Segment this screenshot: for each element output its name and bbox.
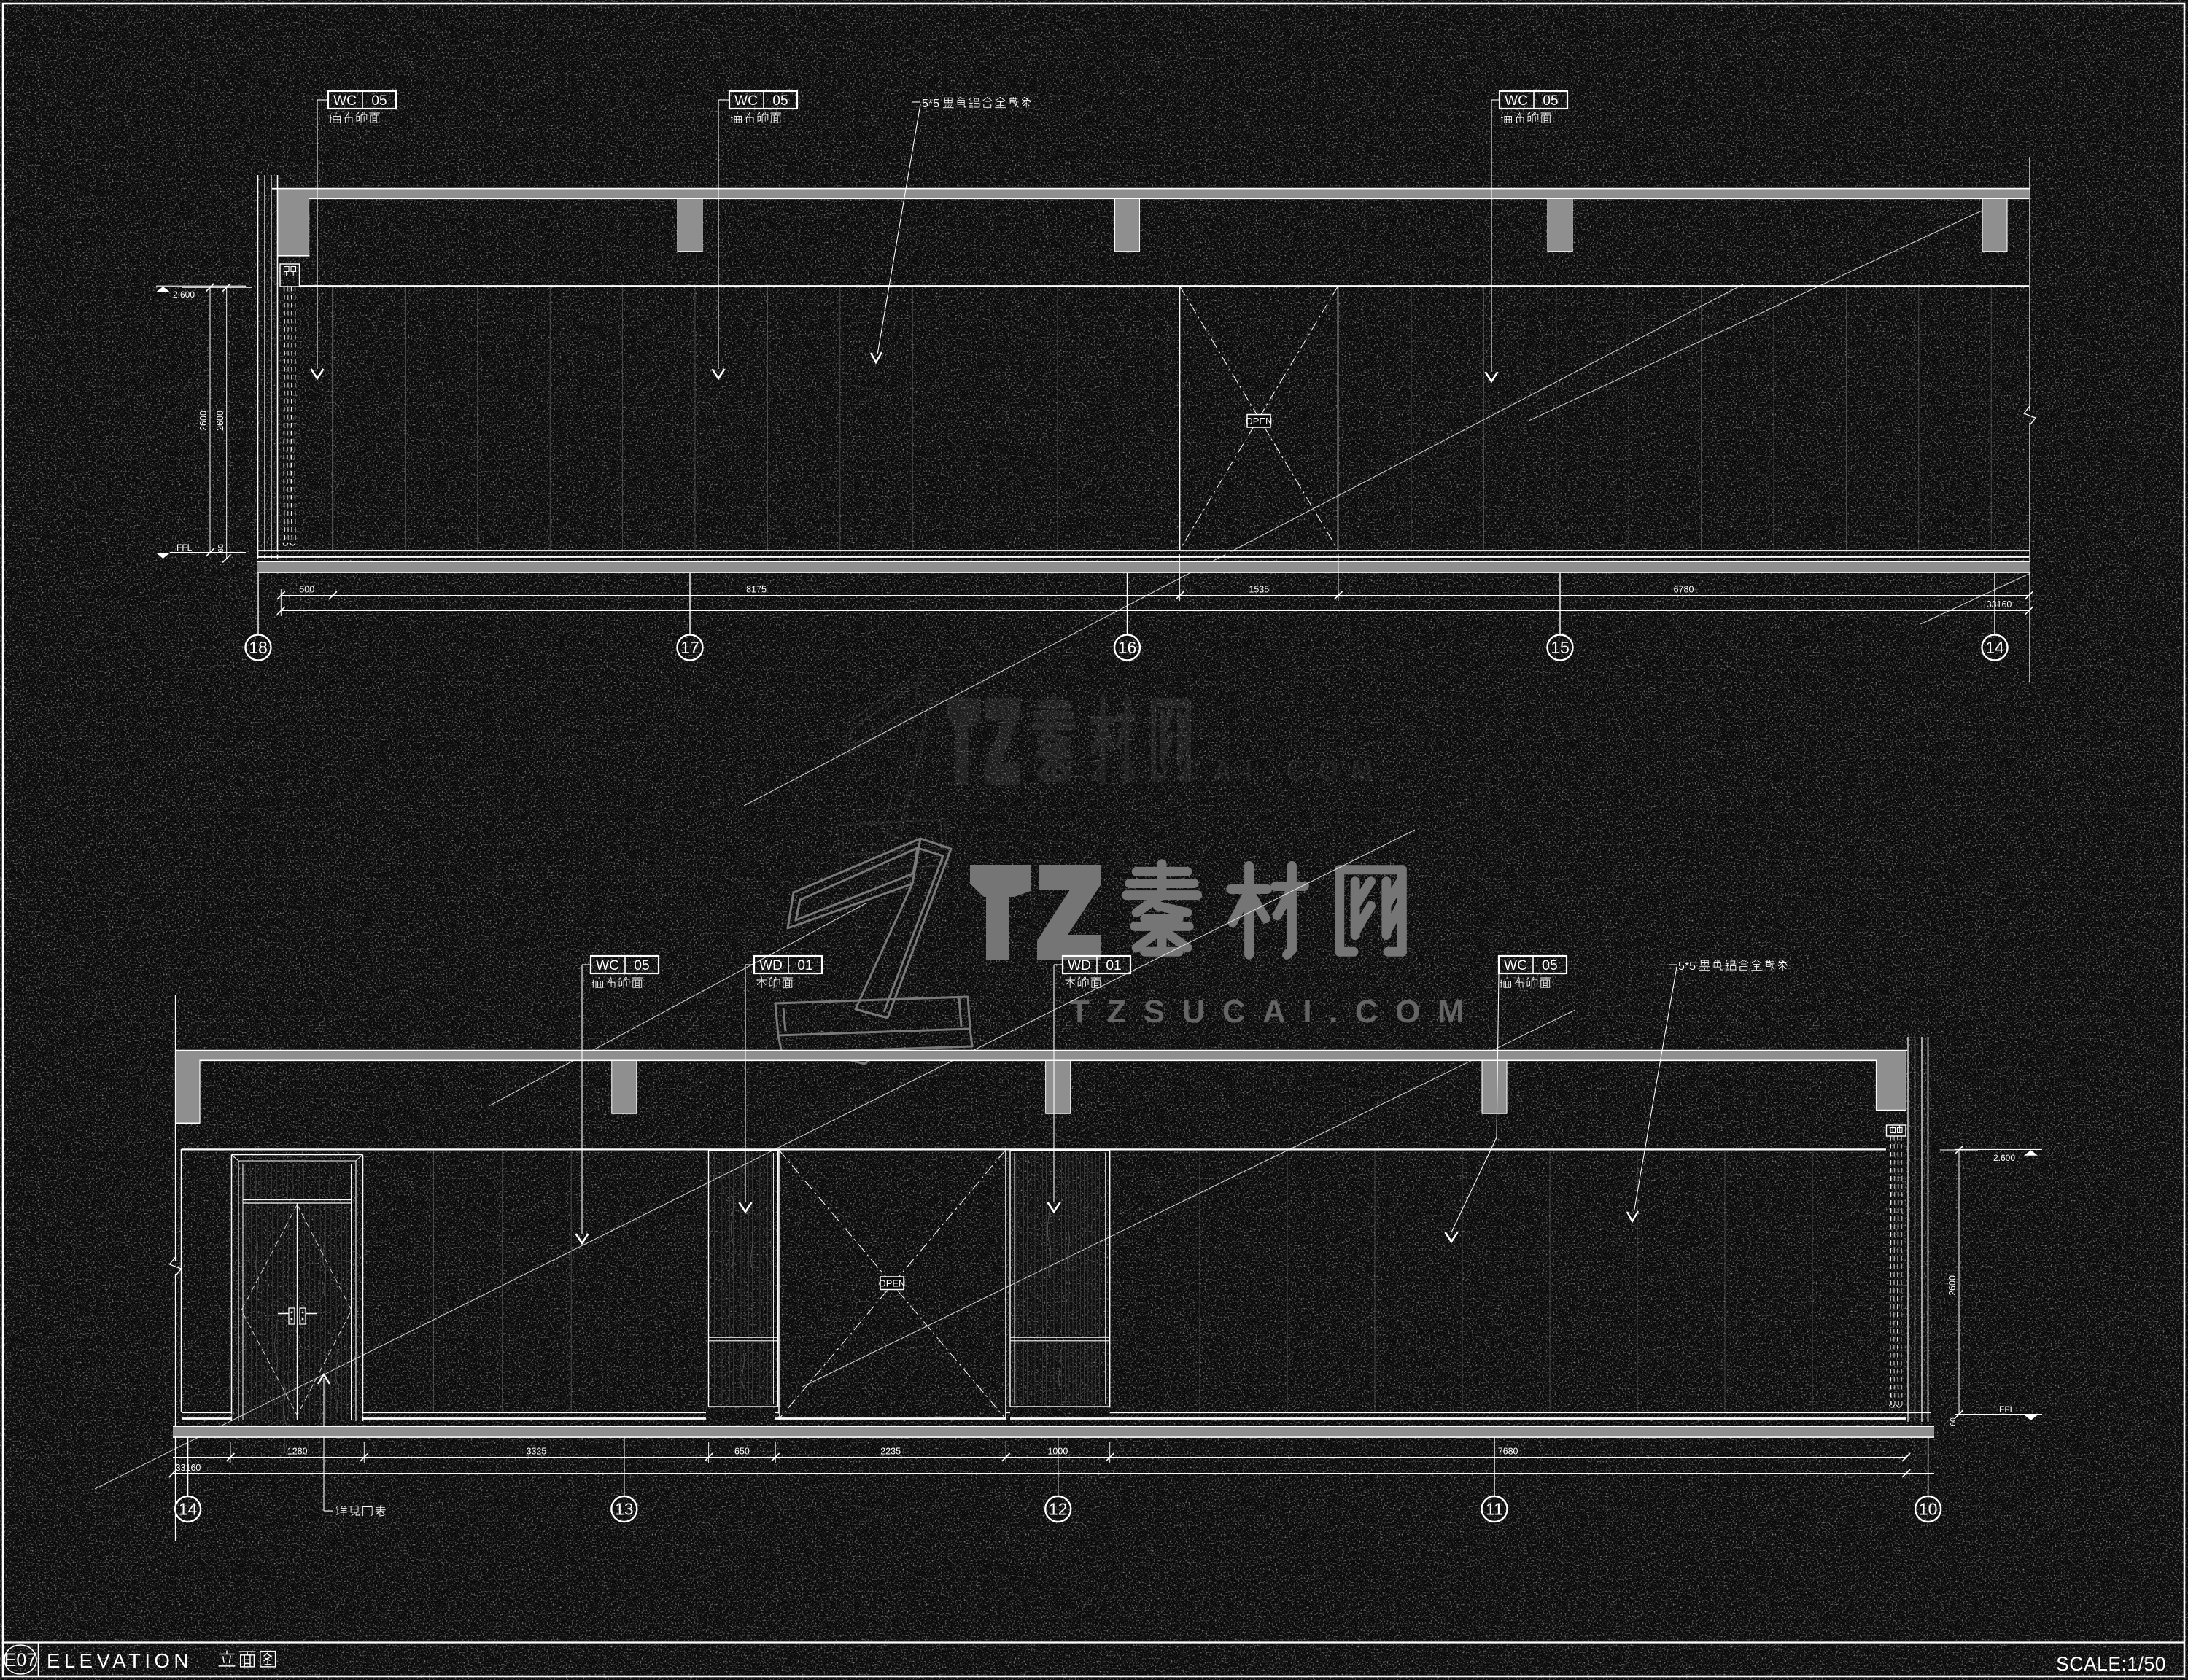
svg-text:18: 18 — [249, 638, 268, 657]
svg-text:500: 500 — [299, 585, 314, 595]
svg-text:TZSUCAI.COM: TZSUCAI.COM — [1070, 994, 1481, 1030]
svg-text:2235: 2235 — [880, 1447, 901, 1457]
svg-text:01: 01 — [1106, 958, 1121, 973]
svg-text:FFL: FFL — [1999, 1404, 2015, 1415]
svg-text:6780: 6780 — [1674, 585, 1694, 595]
svg-text:OPEN: OPEN — [879, 1278, 906, 1289]
svg-text:2.600: 2.600 — [173, 289, 195, 300]
svg-text:WC: WC — [596, 958, 619, 973]
svg-text:WD: WD — [759, 958, 783, 973]
svg-text:5*5: 5*5 — [922, 98, 939, 110]
svg-text:ELEVATION: ELEVATION — [47, 1649, 193, 1672]
svg-text:1280: 1280 — [287, 1447, 308, 1457]
svg-text:17: 17 — [680, 638, 699, 657]
svg-text:7680: 7680 — [1498, 1447, 1518, 1457]
svg-text:05: 05 — [1542, 958, 1557, 973]
svg-text:WC: WC — [1504, 958, 1527, 973]
svg-text:2600: 2600 — [198, 411, 209, 431]
svg-text:WC: WC — [1505, 93, 1528, 109]
svg-text:WD: WD — [1068, 958, 1091, 973]
svg-text:WC: WC — [333, 93, 357, 109]
svg-text:05: 05 — [1543, 93, 1558, 109]
svg-text:8175: 8175 — [746, 585, 767, 595]
svg-text:OPEN: OPEN — [1246, 416, 1273, 427]
svg-text:FFL: FFL — [176, 542, 193, 553]
svg-text:2600: 2600 — [1947, 1275, 1958, 1296]
svg-text:E07: E07 — [4, 1650, 36, 1671]
svg-text:2.600: 2.600 — [1993, 1153, 2015, 1163]
svg-text:3325: 3325 — [526, 1447, 546, 1457]
svg-text:60: 60 — [217, 544, 225, 553]
svg-text:05: 05 — [772, 93, 788, 109]
svg-text:14: 14 — [1985, 638, 2004, 657]
svg-text:1535: 1535 — [1249, 585, 1269, 595]
svg-text:01: 01 — [797, 958, 812, 973]
svg-text:SCALE:1/50: SCALE:1/50 — [2056, 1653, 2166, 1675]
svg-text:12: 12 — [1049, 1500, 1068, 1519]
svg-text:05: 05 — [634, 958, 649, 973]
svg-text:WC: WC — [734, 93, 758, 109]
svg-text:10: 10 — [1919, 1500, 1938, 1519]
svg-text:11: 11 — [1486, 1500, 1503, 1519]
svg-text:13: 13 — [615, 1500, 634, 1519]
svg-text:16: 16 — [1118, 638, 1137, 657]
svg-text:05: 05 — [371, 93, 387, 109]
svg-text:15: 15 — [1551, 638, 1570, 657]
svg-text:33160: 33160 — [1987, 599, 2012, 610]
svg-text:60: 60 — [1949, 1417, 1958, 1426]
svg-text:650: 650 — [734, 1447, 750, 1457]
svg-text:5*5: 5*5 — [1678, 960, 1696, 973]
svg-text:2600: 2600 — [215, 411, 225, 431]
svg-text:14: 14 — [179, 1500, 198, 1519]
